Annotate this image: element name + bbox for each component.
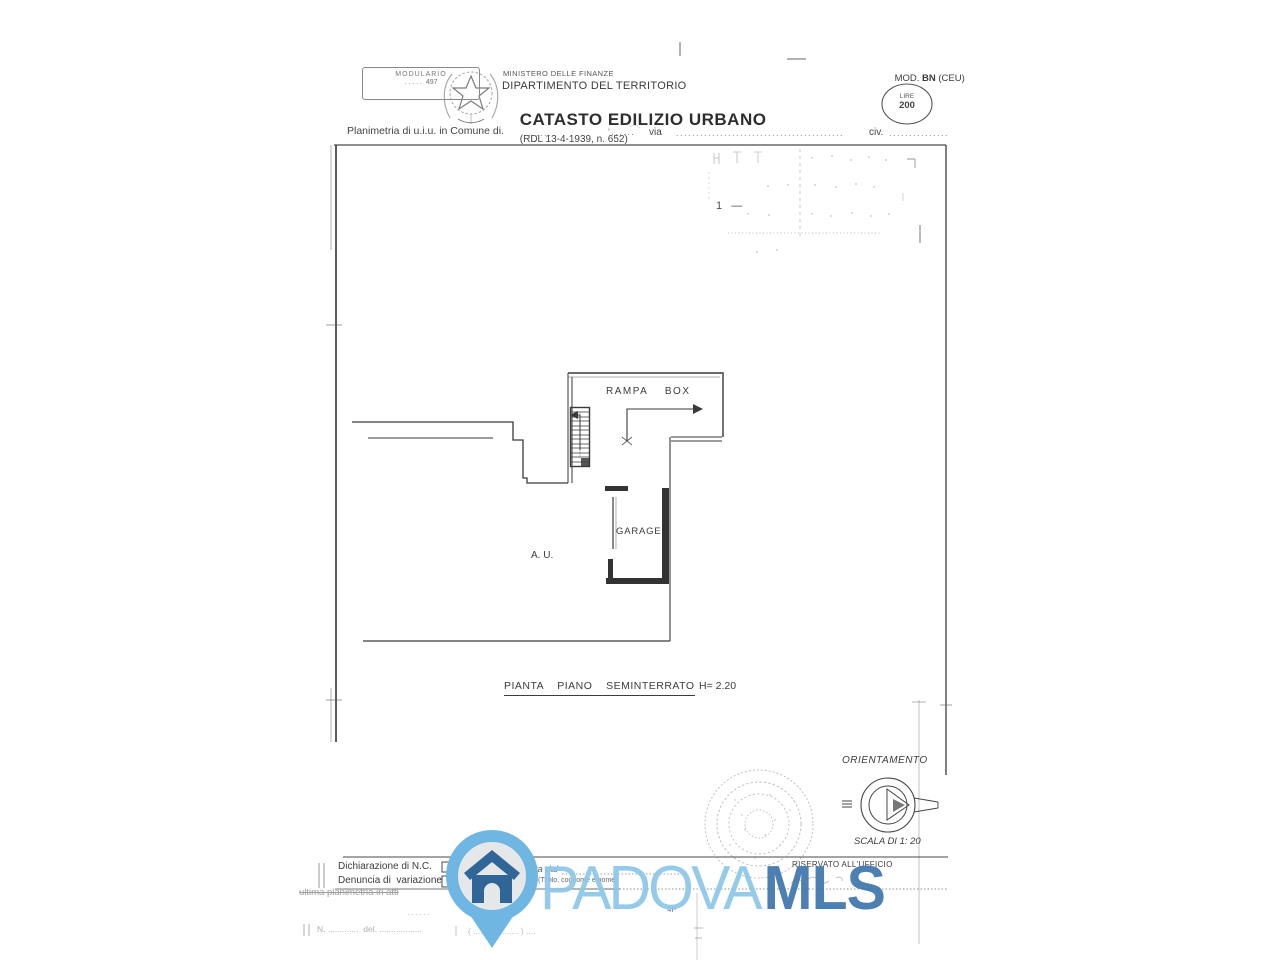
address-row-label: Planimetria di u.i.u. in Comune di. (347, 126, 504, 138)
floorplan-drawing (352, 373, 723, 641)
scanned-document-page: MODULARIO . . . . . 497 MINISTERO DELLE … (0, 0, 1280, 960)
ramp-direction-arrow (622, 404, 703, 445)
mod-code: BN (922, 73, 936, 84)
address-dots-via: ........................................… (676, 129, 844, 139)
compass-icon (842, 778, 938, 832)
address-dots-civ: ............... (889, 129, 949, 139)
orientation-title: ORIENTAMENTO (842, 755, 928, 766)
pencil-note: 1 — (716, 200, 742, 212)
ministry-label: MINISTERO DELLE FINANZE (503, 70, 614, 78)
modulario-box: MODULARIO . . . . . 497 (362, 67, 480, 100)
faint-row-right: ( .... ( ........... ) .... (468, 927, 536, 936)
room-label-garage: GARAGE (616, 527, 661, 537)
plan-caption: PIANTA PIANO SEMINTERRATO (504, 681, 695, 696)
plan-height-note: H= 2.20 (699, 681, 736, 693)
staircase (570, 408, 590, 467)
registration-ticks (326, 42, 952, 960)
room-label-rampa-box: RAMPA BOX (606, 386, 691, 397)
via-label: via (649, 127, 662, 138)
declaration-label: Dichiarazione di N.C. (338, 861, 432, 872)
checkbox-denuncia (442, 876, 455, 887)
checkbox-dichiarazione (442, 862, 454, 872)
watermark-brand-bold: MLS (763, 854, 884, 923)
room-label-au: A. U. (531, 550, 553, 561)
watermark-brand: PADOVAMLS (540, 853, 885, 924)
modulario-line2: . . . . . 497 (363, 79, 479, 87)
struck-note: ultima planimetria in atti (299, 888, 399, 898)
department-label: DIPARTIMENTO DEL TERRITORIO (502, 80, 687, 92)
address-dots-b: '...... (608, 128, 635, 138)
mini-dots: ...... (407, 908, 431, 918)
document-title: CATASTO EDILIZIO URBANO (520, 110, 767, 129)
watermark-brand-light: PADOVA (540, 854, 760, 923)
variation-label: Denuncia di variazione (338, 875, 442, 886)
civ-label: civ. (869, 127, 883, 138)
mod-prefix: MOD. (895, 73, 922, 84)
address-dots-a: ...... (528, 129, 552, 139)
mod-suffix: (CEU) (936, 73, 965, 84)
modulario-line1: MODULARIO (363, 71, 479, 79)
scale-label: SCALA DI 1: 20 (854, 837, 921, 847)
fee-stamp-value: 200 (882, 101, 932, 111)
handwriting-squiggle (630, 125, 842, 884)
faint-row-left: N. ............. del. .................. (317, 925, 422, 934)
